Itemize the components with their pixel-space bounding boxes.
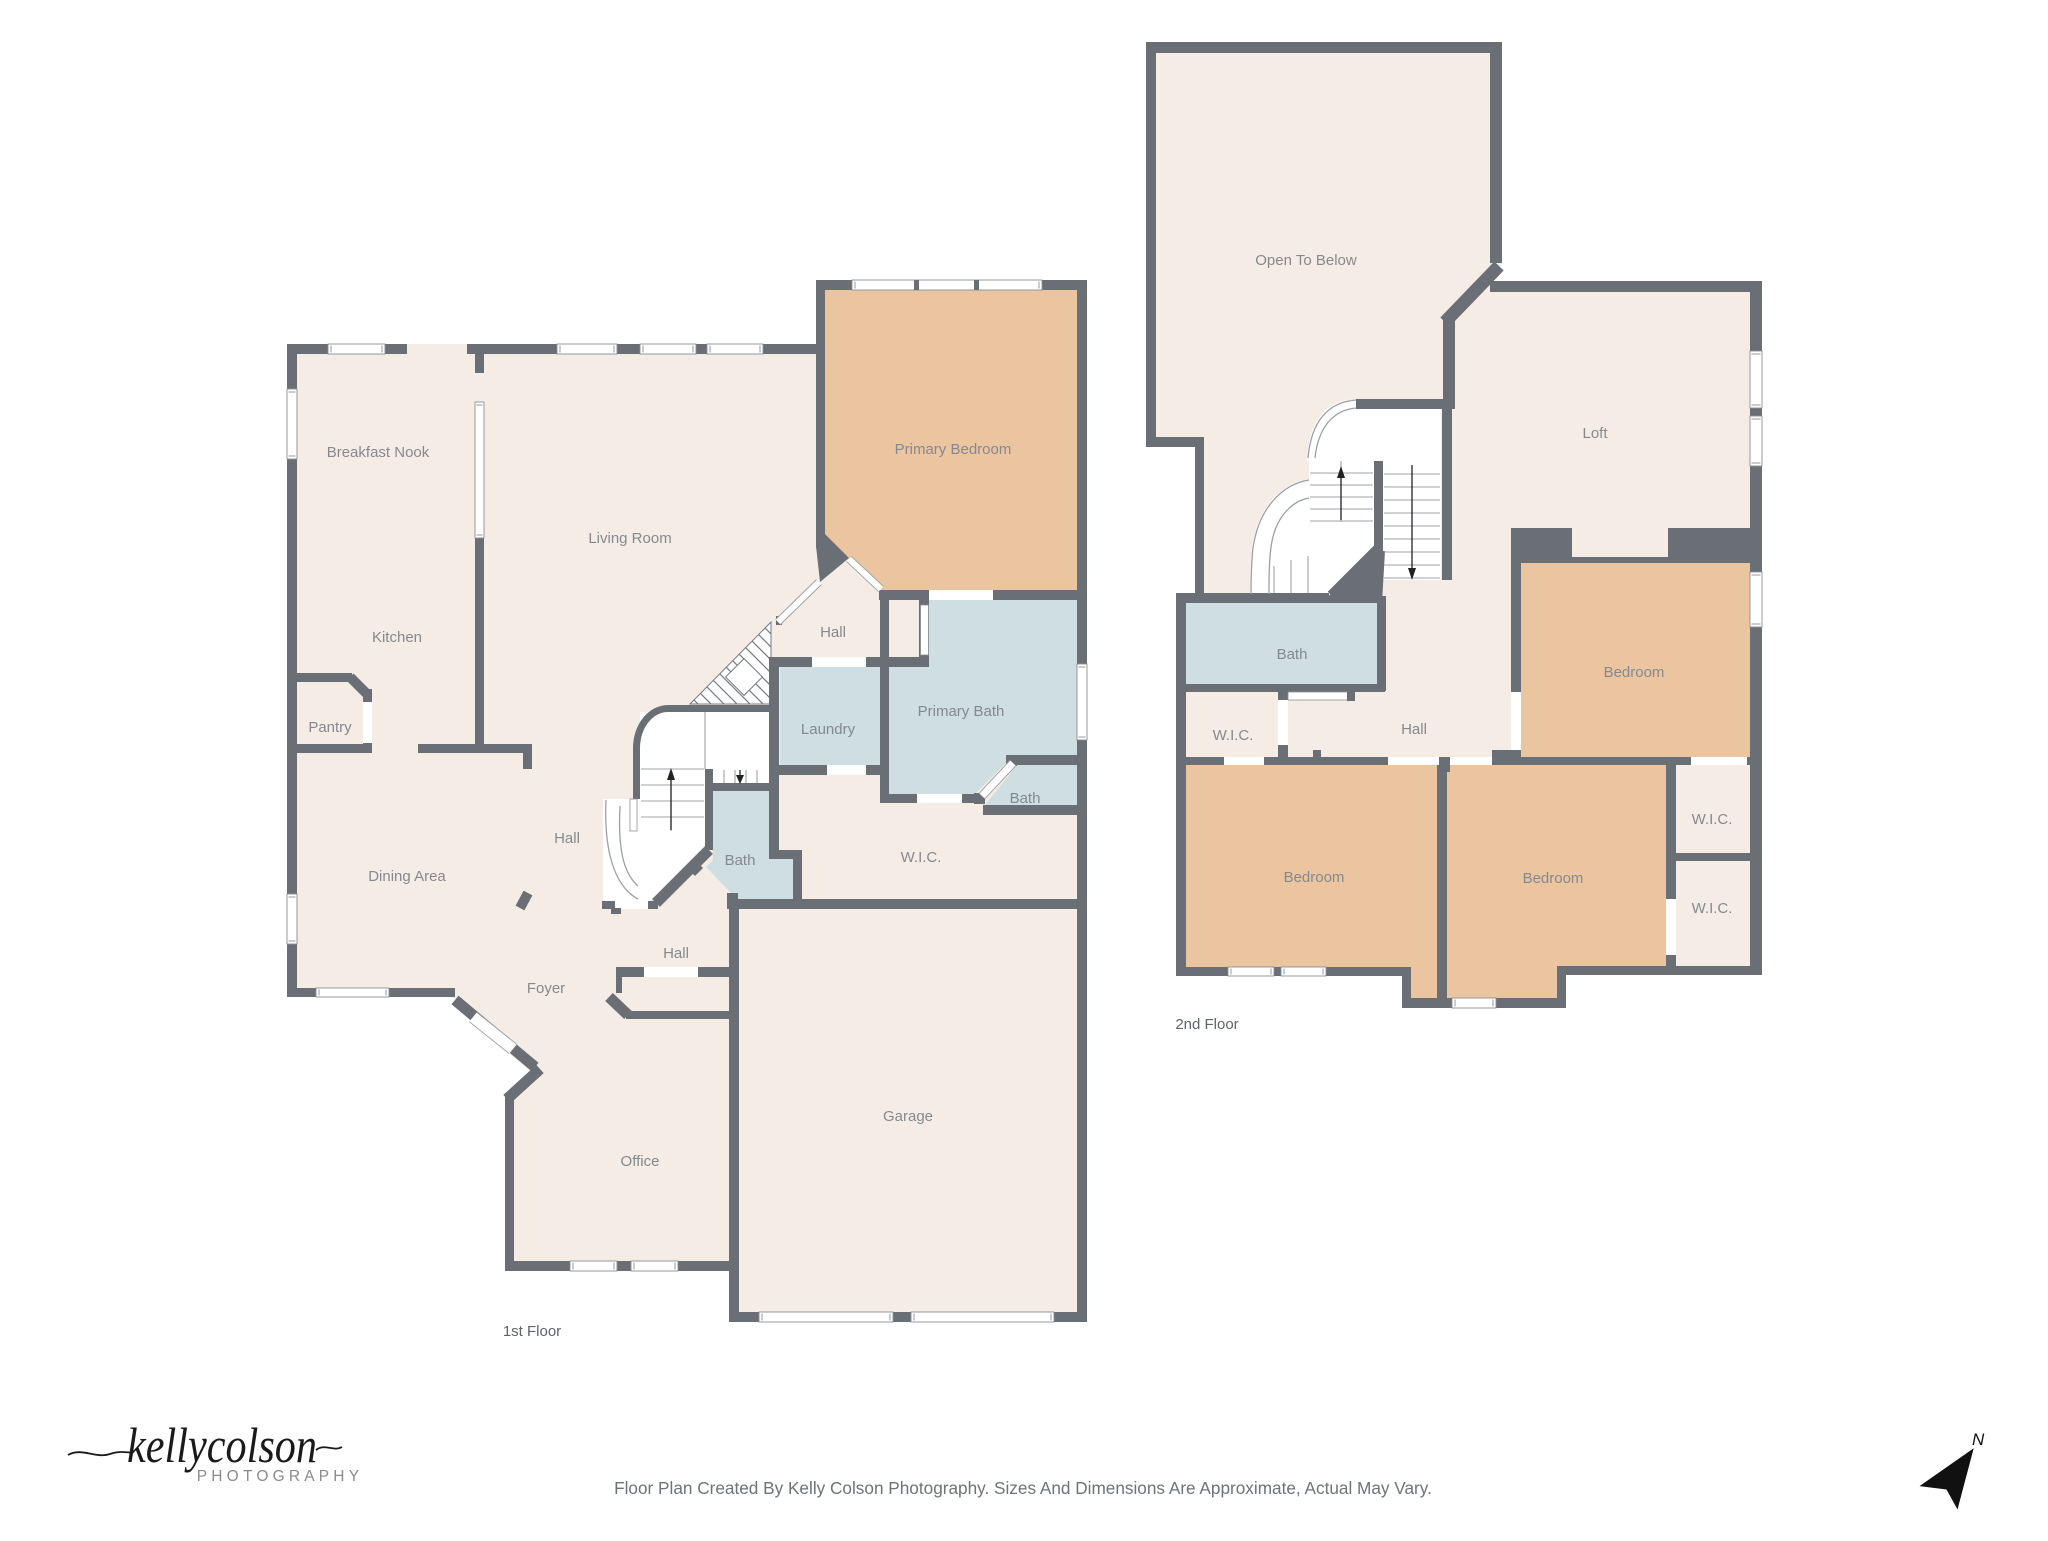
svg-text:Laundry: Laundry [801,721,856,738]
svg-text:Primary Bath: Primary Bath [918,703,1005,720]
svg-text:Office: Office [621,1153,660,1170]
svg-text:Pantry: Pantry [308,719,352,736]
svg-text:Hall: Hall [663,945,689,962]
svg-text:Primary Bedroom: Primary Bedroom [895,441,1012,458]
svg-text:Bath: Bath [725,852,756,869]
svg-text:Foyer: Foyer [527,980,565,997]
svg-text:Bath: Bath [1010,790,1041,807]
svg-text:W.I.C.: W.I.C. [1692,811,1733,828]
svg-text:Dining Area: Dining Area [368,868,446,885]
svg-text:1st Floor: 1st Floor [503,1323,561,1340]
svg-text:W.I.C.: W.I.C. [1213,727,1254,744]
svg-text:N: N [1972,1430,1985,1449]
svg-text:Garage: Garage [883,1108,933,1125]
svg-text:Living Room: Living Room [588,530,671,547]
svg-text:kellycolson: kellycolson [127,1417,317,1473]
svg-text:Bedroom: Bedroom [1284,869,1345,886]
svg-text:W.I.C.: W.I.C. [901,849,942,866]
svg-text:Bedroom: Bedroom [1523,870,1584,887]
svg-text:Floor Plan Created By Kelly Co: Floor Plan Created By Kelly Colson Photo… [614,1478,1432,1498]
svg-text:Open To Below: Open To Below [1255,252,1357,269]
svg-text:Hall: Hall [1401,721,1427,738]
svg-text:Hall: Hall [554,830,580,847]
svg-text:2nd Floor: 2nd Floor [1175,1016,1238,1033]
svg-text:Bath: Bath [1277,646,1308,663]
svg-text:PHOTOGRAPHY: PHOTOGRAPHY [197,1468,364,1485]
svg-text:Hall: Hall [820,624,846,641]
svg-text:Loft: Loft [1582,425,1608,442]
svg-text:Bedroom: Bedroom [1604,664,1665,681]
svg-text:Kitchen: Kitchen [372,629,422,646]
svg-text:W.I.C.: W.I.C. [1692,900,1733,917]
svg-text:Breakfast Nook: Breakfast Nook [327,444,430,461]
